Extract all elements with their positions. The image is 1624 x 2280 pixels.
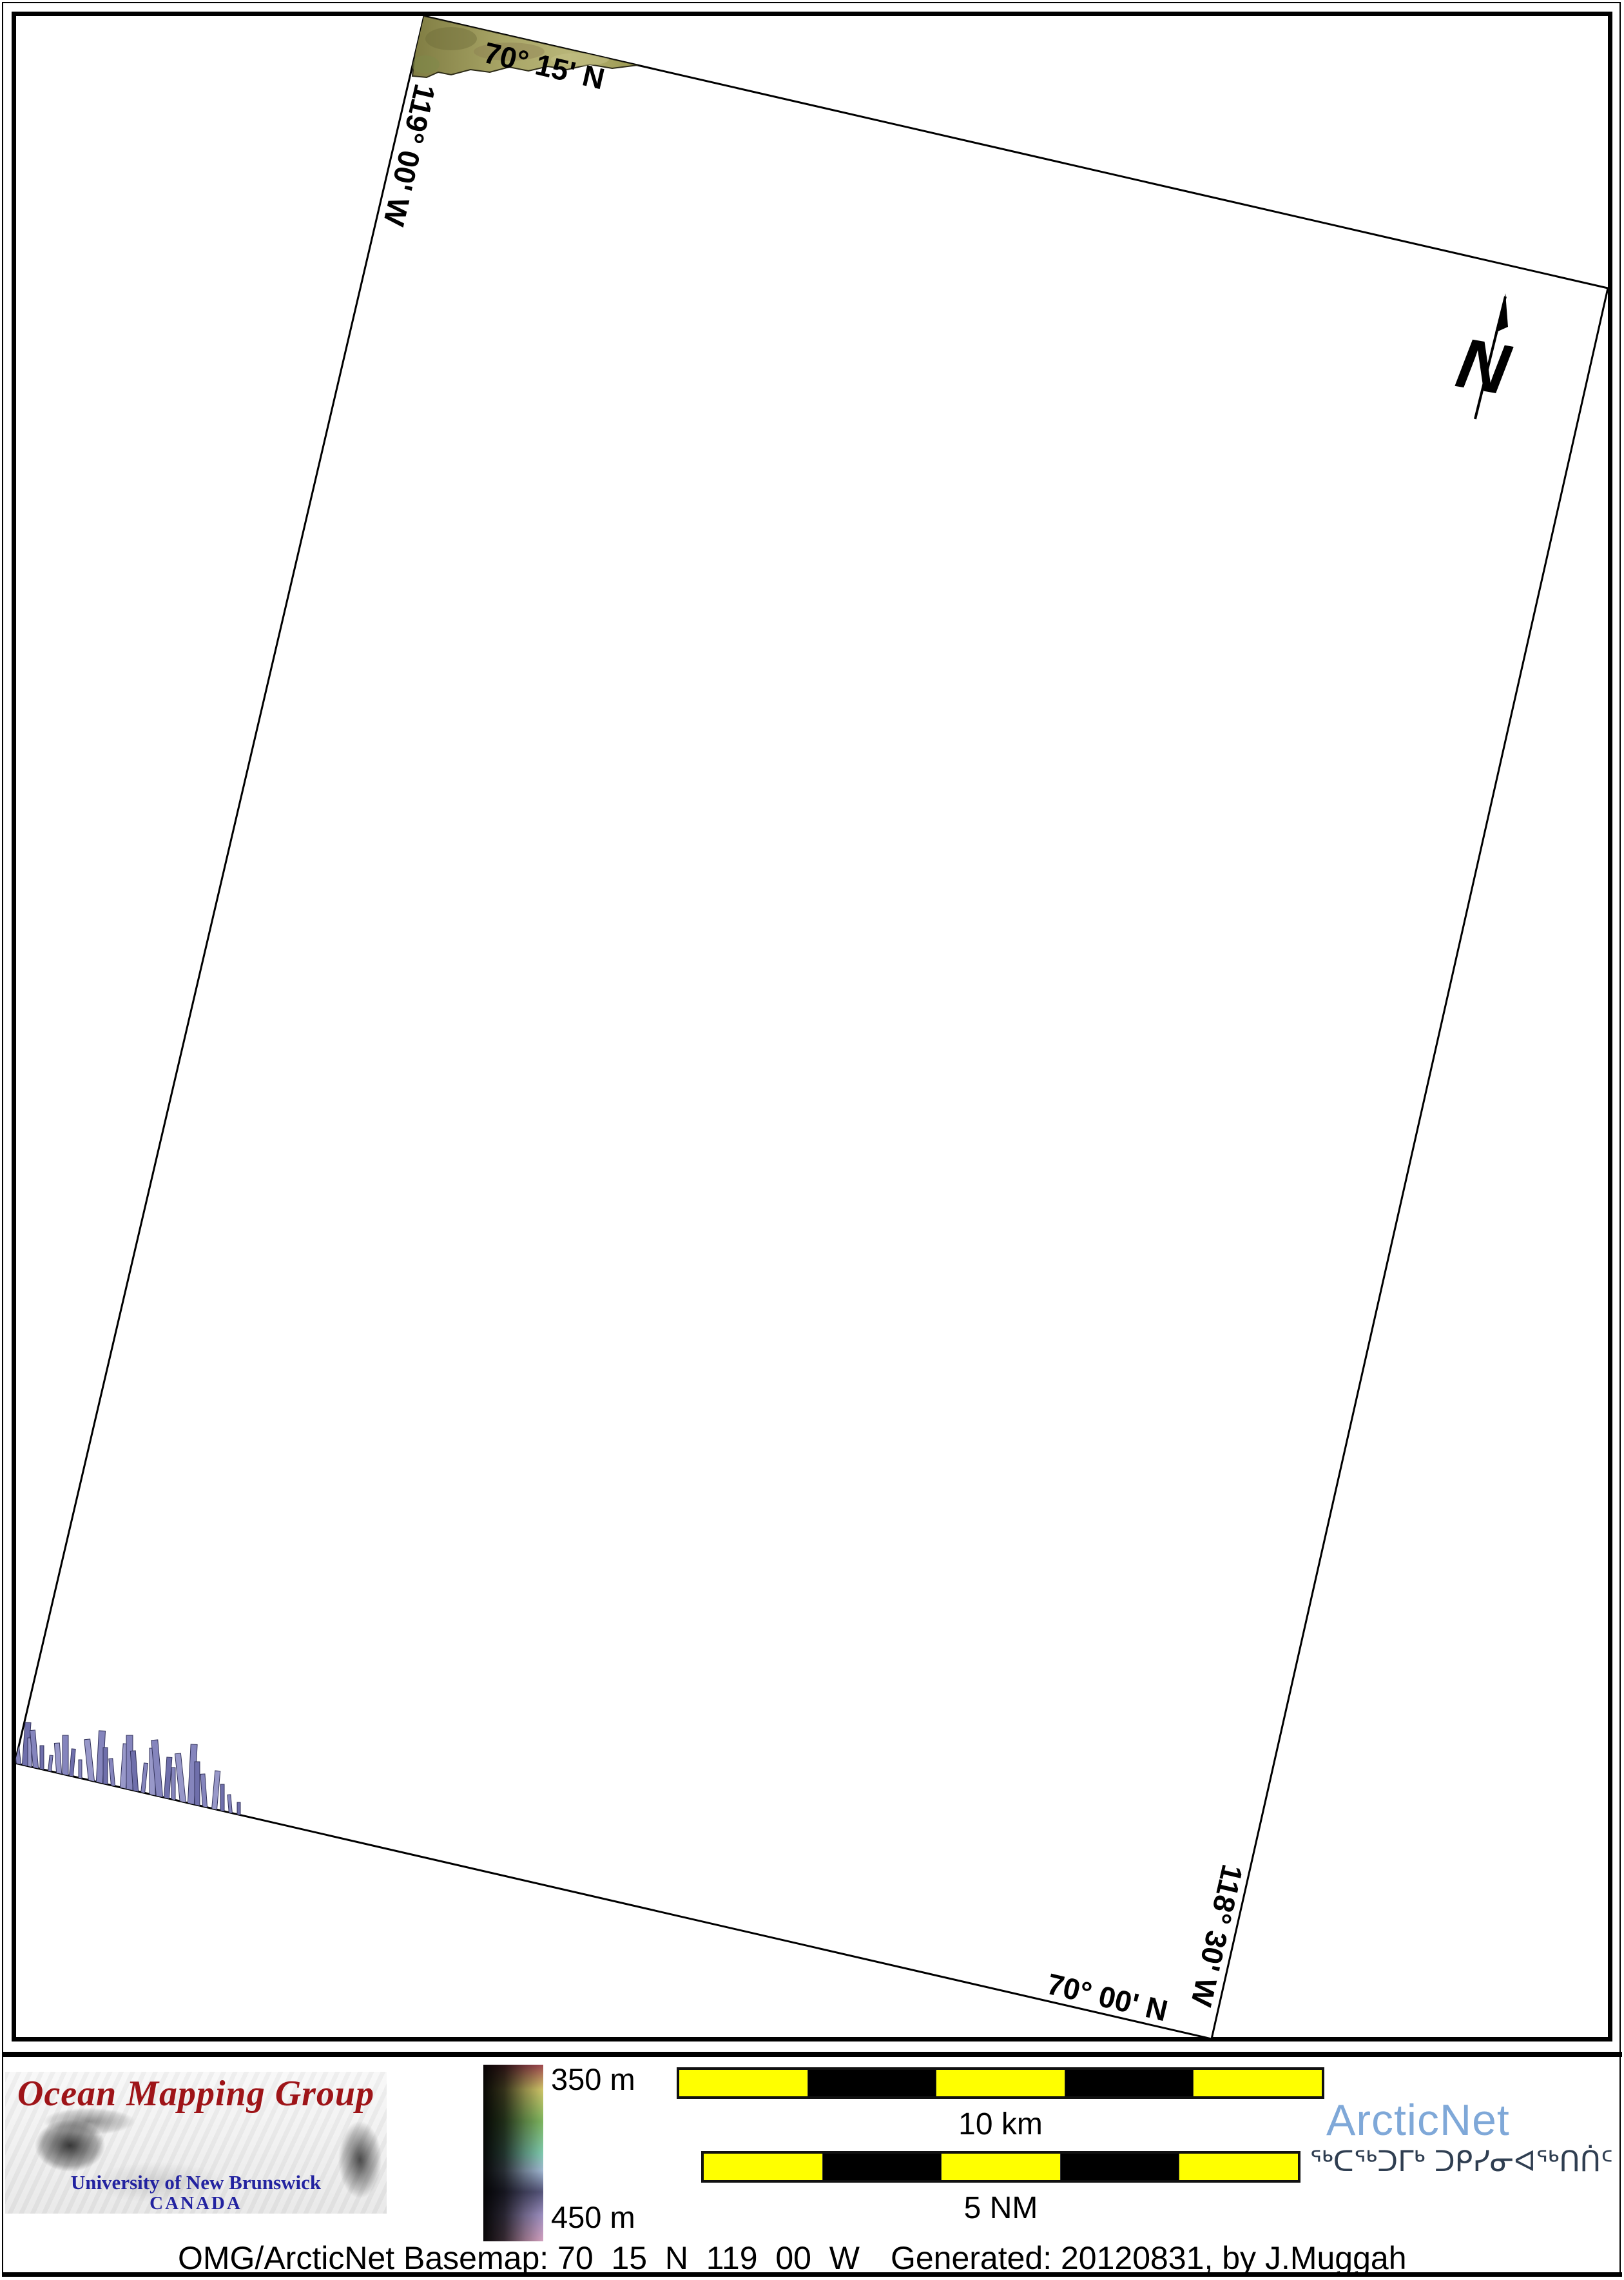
scalebar-segment [1179, 2154, 1298, 2180]
caption-generated: Generated: 20120831, by J.Muggah [891, 2240, 1407, 2276]
omg-logo-title: Ocean Mapping Group [5, 2073, 387, 2114]
scalebar-km [677, 2067, 1324, 2099]
scalebar-segment [1193, 2070, 1322, 2096]
scalebar-segment [1060, 2154, 1179, 2180]
scalebar-km-label: 10 km [677, 2107, 1324, 2142]
scalebar-segment [822, 2154, 942, 2180]
arcticnet-inuktitut-text: ᖅᑕᖅᑐᒥᒃ ᑐᑭᓯᓂᐊᖅᑎᑏᑦ [1310, 2145, 1613, 2178]
depth-colorbar [483, 2065, 543, 2241]
omg-logo-university: University of New Brunswick [5, 2171, 387, 2194]
scalebar-segment [1065, 2070, 1194, 2096]
scalebar-nm [701, 2151, 1300, 2183]
scalebar-segment [941, 2154, 1060, 2180]
scalebar-segment [936, 2070, 1065, 2096]
scalebar-nm-label: 5 NM [701, 2190, 1300, 2226]
basemap-caption: OMG/ArcticNet Basemap: 70_15_N_119_00_WG… [178, 2239, 1407, 2277]
depth-label-shallow: 350 m [551, 2061, 635, 2097]
scalebar-segment [679, 2070, 807, 2096]
depth-label-deep: 450 m [551, 2199, 635, 2235]
omg-logo: Ocean Mapping Group University of New Br… [5, 2072, 387, 2214]
map-canvas: 70° 15' N 119° 00' W 118° 30' W 70° 00' … [0, 0, 1624, 2280]
survey-boundary [15, 16, 1608, 2039]
caption-basemap-id: OMG/ArcticNet Basemap: 70_15_N_119_00_W [178, 2240, 860, 2276]
scalebar-segment [807, 2070, 936, 2096]
arcticnet-logo: ArcticNet [1326, 2095, 1510, 2145]
scalebar-segment [704, 2154, 822, 2180]
omg-logo-country: CANADA [5, 2193, 387, 2214]
